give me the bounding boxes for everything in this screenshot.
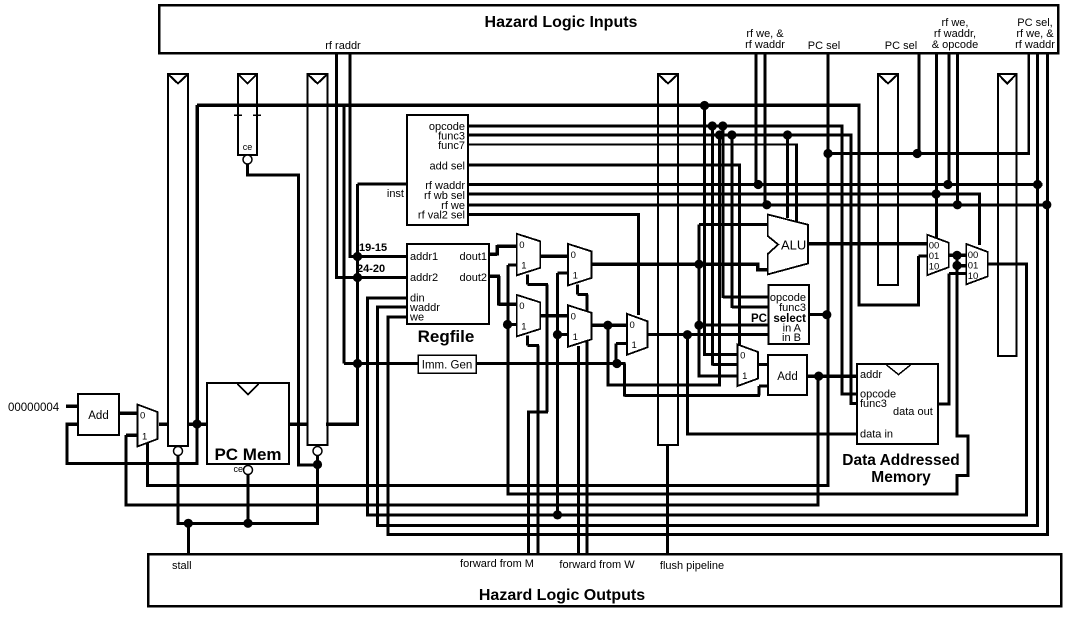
svg-text:10: 10 (929, 262, 940, 273)
svg-text:PC sel: PC sel (885, 40, 917, 52)
svg-text:Memory: Memory (871, 469, 931, 486)
svg-text:data out: data out (893, 406, 933, 418)
svg-text:func3: func3 (860, 398, 887, 410)
svg-text:forward from W: forward from W (559, 559, 635, 571)
svg-text:& opcode: & opcode (932, 39, 978, 51)
svg-text:1: 1 (521, 260, 526, 271)
svg-text:rf waddr: rf waddr (745, 39, 785, 51)
svg-text:dout1: dout1 (459, 251, 487, 263)
svg-text:PC sel: PC sel (808, 40, 840, 52)
svg-text:forward from M: forward from M (460, 558, 534, 570)
svg-text:0: 0 (740, 351, 745, 362)
svg-text:addr: addr (860, 369, 882, 381)
svg-text:ce: ce (233, 464, 243, 474)
svg-text:ALU: ALU (781, 238, 806, 253)
svg-text:Add: Add (777, 371, 797, 383)
svg-text:PC: PC (751, 313, 767, 325)
svg-text:00: 00 (929, 241, 940, 252)
svg-text:in B: in B (782, 332, 801, 344)
svg-text:0: 0 (630, 320, 635, 331)
svg-text:addr1: addr1 (410, 251, 438, 263)
svg-text:PC Mem: PC Mem (214, 445, 281, 464)
svg-text:dout2: dout2 (459, 272, 487, 284)
svg-text:1: 1 (573, 270, 578, 281)
svg-text:data in: data in (860, 429, 893, 441)
svg-text:addr2: addr2 (410, 272, 438, 284)
svg-text:0: 0 (571, 311, 576, 322)
svg-text:we: we (409, 312, 424, 324)
svg-text:1: 1 (573, 332, 578, 343)
svg-text:00: 00 (968, 250, 979, 261)
svg-text:19-15: 19-15 (359, 242, 387, 254)
svg-text:0: 0 (519, 240, 524, 251)
svg-text:1: 1 (632, 340, 637, 351)
svg-text:0: 0 (519, 301, 524, 312)
svg-text:ce: ce (243, 142, 253, 152)
svg-text:10: 10 (968, 271, 979, 282)
svg-text:Hazard Logic Inputs: Hazard Logic Inputs (485, 14, 638, 31)
svg-text:stall: stall (172, 560, 192, 572)
svg-text:func7: func7 (438, 140, 465, 152)
svg-text:0: 0 (571, 250, 576, 261)
svg-text:flush pipeline: flush pipeline (660, 560, 724, 572)
svg-text:add sel: add sel (430, 161, 465, 173)
svg-text:inst: inst (387, 188, 404, 200)
svg-text:24-20: 24-20 (357, 263, 385, 275)
svg-text:Imm. Gen: Imm. Gen (422, 360, 472, 372)
svg-text:1: 1 (142, 432, 147, 443)
svg-text:00000004: 00000004 (8, 402, 60, 414)
svg-text:1: 1 (742, 371, 747, 382)
svg-text:rf val2 sel: rf val2 sel (418, 210, 465, 222)
svg-text:Data Addressed: Data Addressed (842, 452, 959, 469)
svg-text:1: 1 (521, 321, 526, 332)
svg-text:rf raddr: rf raddr (325, 40, 361, 52)
svg-text:0: 0 (140, 411, 145, 422)
svg-text:Hazard Logic Outputs: Hazard Logic Outputs (479, 587, 645, 604)
svg-text:rf waddr: rf waddr (1015, 39, 1055, 51)
svg-text:Regfile: Regfile (418, 327, 475, 346)
svg-text:Add: Add (88, 410, 108, 422)
svg-text:01: 01 (929, 251, 940, 262)
svg-text:01: 01 (968, 260, 979, 271)
